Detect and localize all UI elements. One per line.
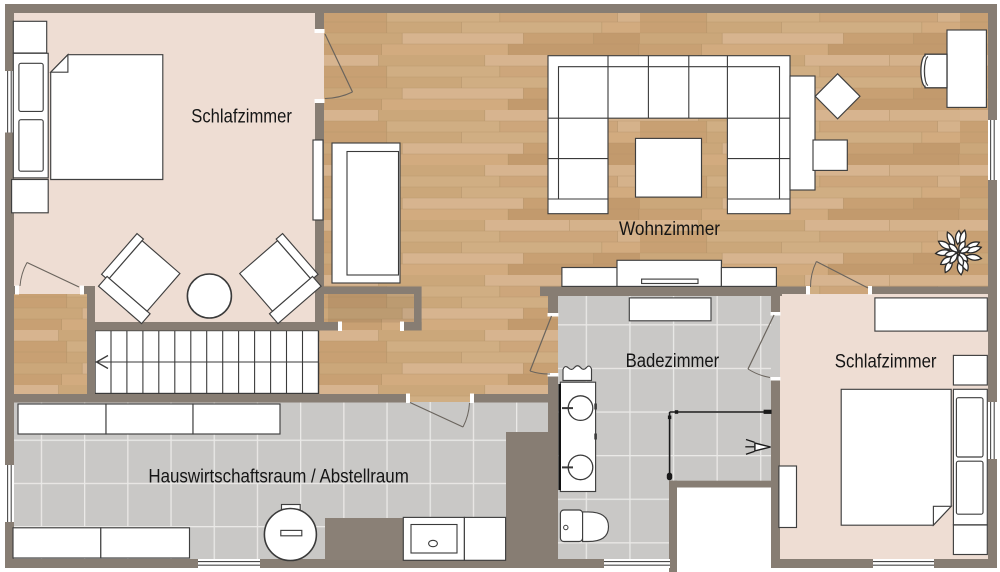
svg-text:Wohnzimmer: Wohnzimmer — [619, 219, 721, 240]
svg-text:Badezimmer: Badezimmer — [626, 351, 720, 372]
svg-text:Hauswirtschaftsraum / Abstellr: Hauswirtschaftsraum / Abstellraum — [148, 467, 408, 488]
svg-text:Schlafzimmer: Schlafzimmer — [835, 352, 937, 373]
svg-text:Schlafzimmer: Schlafzimmer — [191, 106, 292, 127]
